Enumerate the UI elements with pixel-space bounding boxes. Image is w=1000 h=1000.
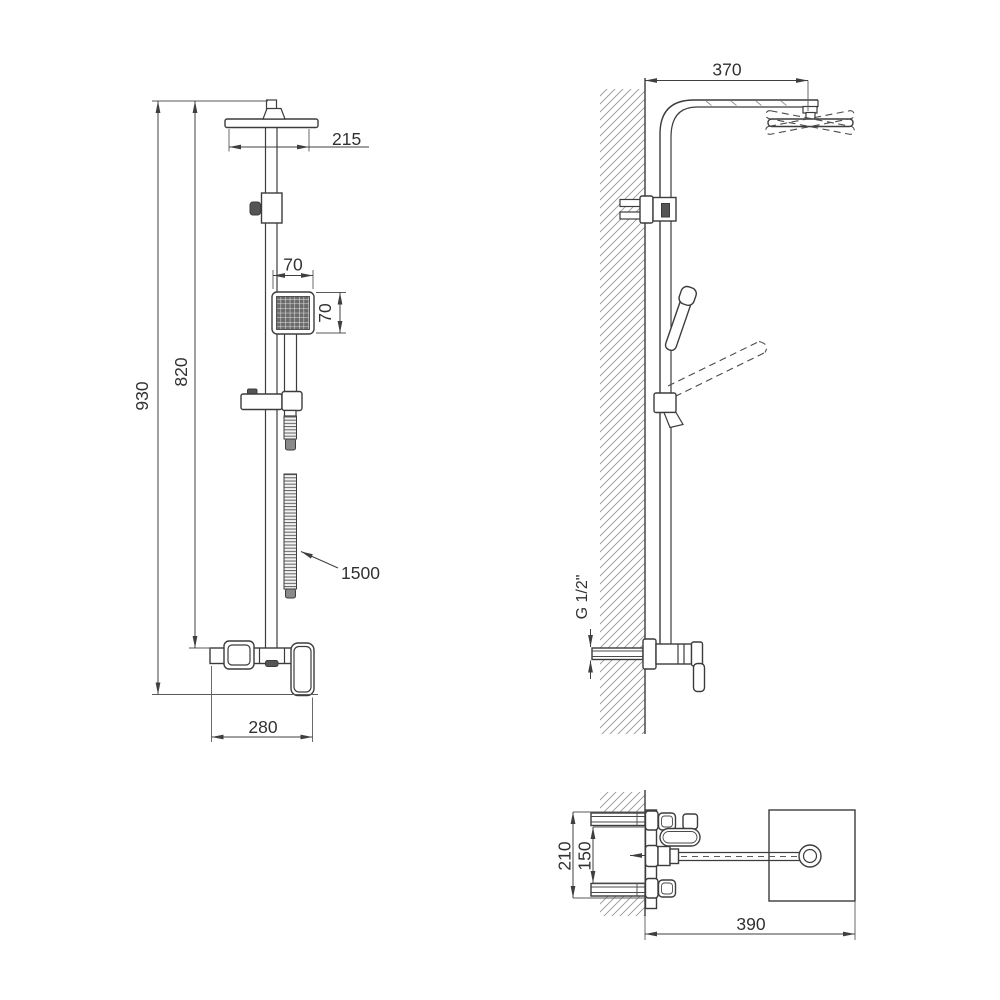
hand-shower-handle [285,334,297,392]
front-view: 930 820 215 70 70 1500 280 [132,100,380,742]
arm-joint-outer [799,845,821,867]
diverter-knob [250,202,261,215]
overhead-shower-head-front [225,119,318,128]
overhead-shower-head-side [768,119,853,127]
front-dimensions: 930 820 215 70 70 1500 280 [132,101,380,742]
overhead-shower-side [765,107,855,136]
wall-inlet-pipe [592,648,643,660]
hose-nut [266,661,279,667]
mixer-front [210,641,314,696]
hand-shower-tilt-range [668,342,765,397]
dim-inlet-spacing: 150 [575,841,595,870]
escutcheon-side [643,639,656,669]
mixer-handle-side [694,664,705,692]
shower-hose-front [284,411,297,599]
hand-shower-front [272,292,314,392]
dim-hand-shower-height: 70 [315,303,335,323]
dim-reach: 390 [736,914,765,934]
dim-thread-size: G 1/2" [574,575,591,620]
bracket-screw [662,204,670,218]
dim-arm-reach: 370 [712,60,741,80]
top-connector [263,100,285,119]
dim-head-width: 215 [332,129,361,149]
top-view: 210 150 390 [555,790,856,940]
shower-system-drawing: 930 820 215 70 70 1500 280 [0,0,1000,1000]
hand-shower-spray-face [277,297,310,330]
slider-holder-side [654,393,676,413]
mixer-top [646,810,701,909]
dim-body-depth: 210 [555,841,575,870]
dim-hand-shower-width: 70 [283,255,303,275]
slider-bracket-front [241,389,302,411]
riser-and-arm-side [660,100,818,648]
dim-bar-height: 820 [171,357,191,386]
wall-cutout [590,826,645,888]
dim-total-height: 930 [132,381,152,410]
dim-hose-length: 1500 [341,563,380,583]
dim-mixer-width: 280 [248,717,277,737]
upper-bracket-front [250,193,282,223]
side-view: 370 G 1/2" [574,60,855,735]
wall-hatch-side [600,89,645,734]
hose-nipple [664,413,683,428]
technical-drawing-page: 930 820 215 70 70 1500 280 [0,0,1000,1000]
